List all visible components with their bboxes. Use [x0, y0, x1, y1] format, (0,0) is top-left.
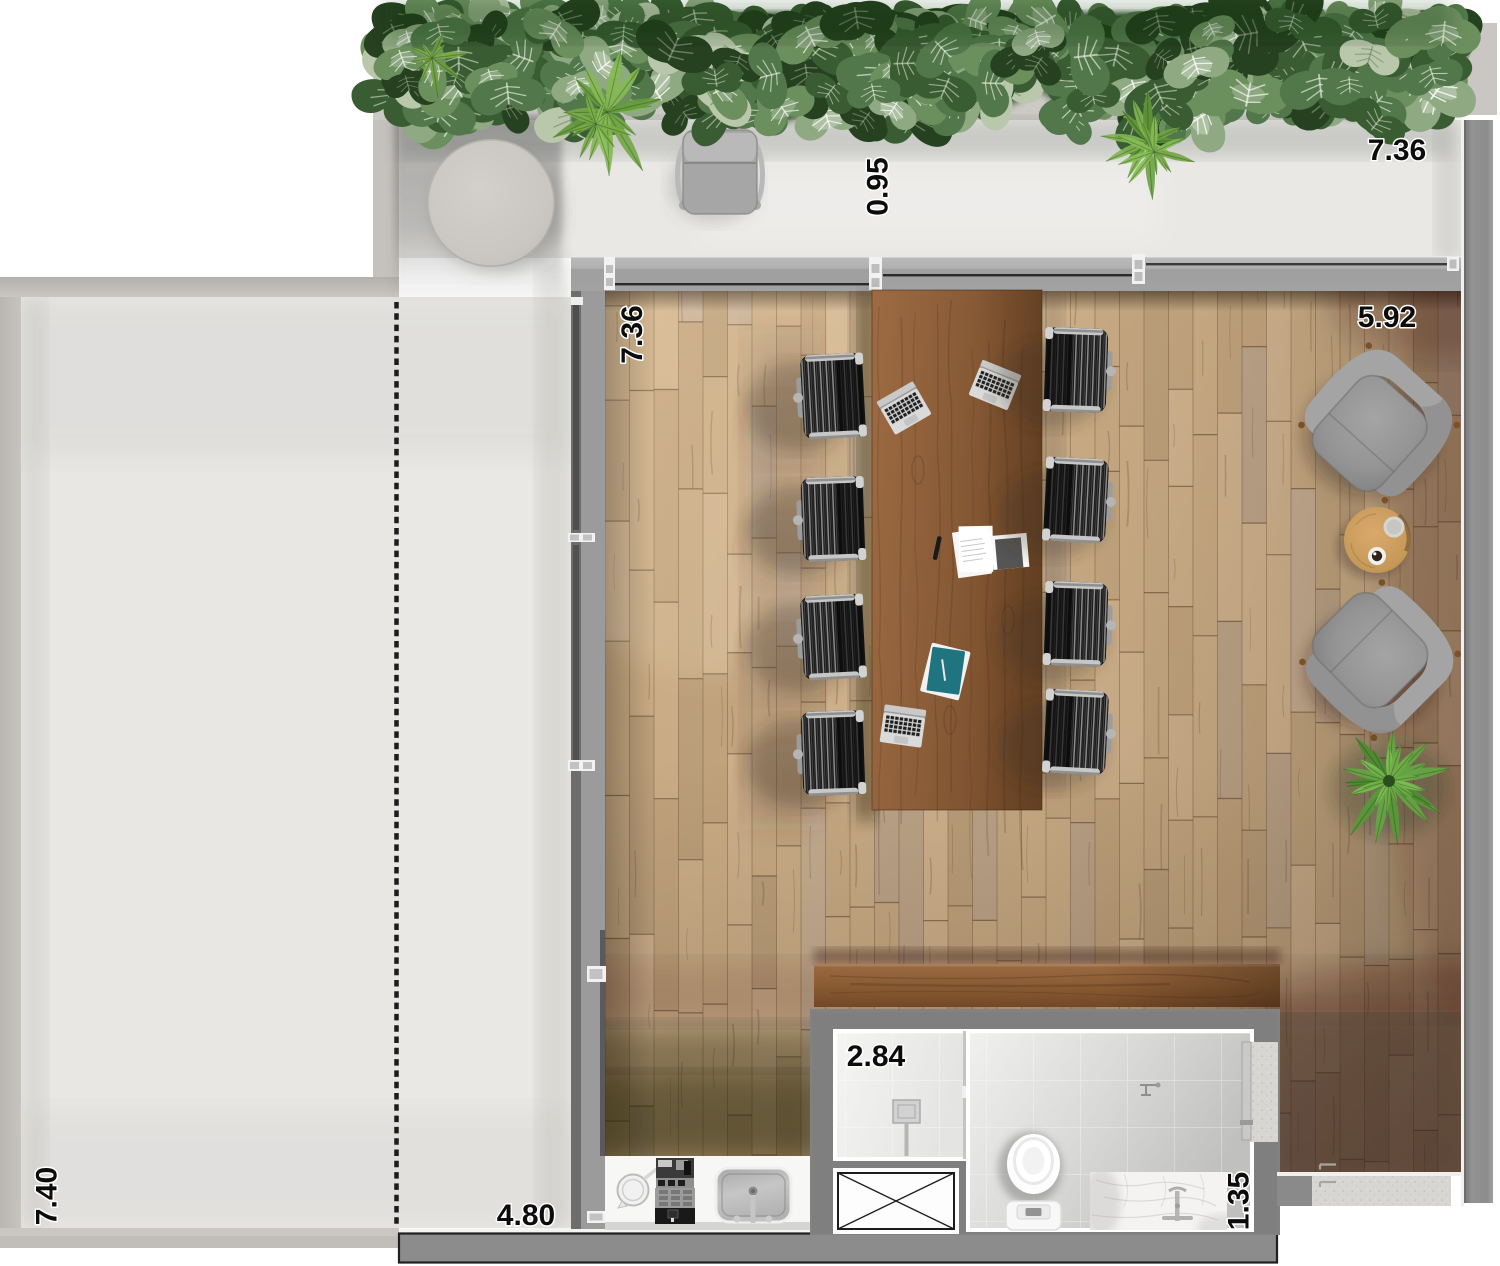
svg-text:7.36: 7.36: [616, 305, 649, 363]
svg-text:0.95: 0.95: [862, 157, 895, 215]
svg-text:2.84: 2.84: [847, 1040, 906, 1073]
svg-text:4.80: 4.80: [497, 1199, 555, 1232]
svg-text:7.36: 7.36: [1368, 134, 1426, 167]
svg-text:7.40: 7.40: [31, 1167, 64, 1225]
svg-text:1.35: 1.35: [1223, 1172, 1256, 1230]
svg-text:5.92: 5.92: [1358, 301, 1416, 334]
